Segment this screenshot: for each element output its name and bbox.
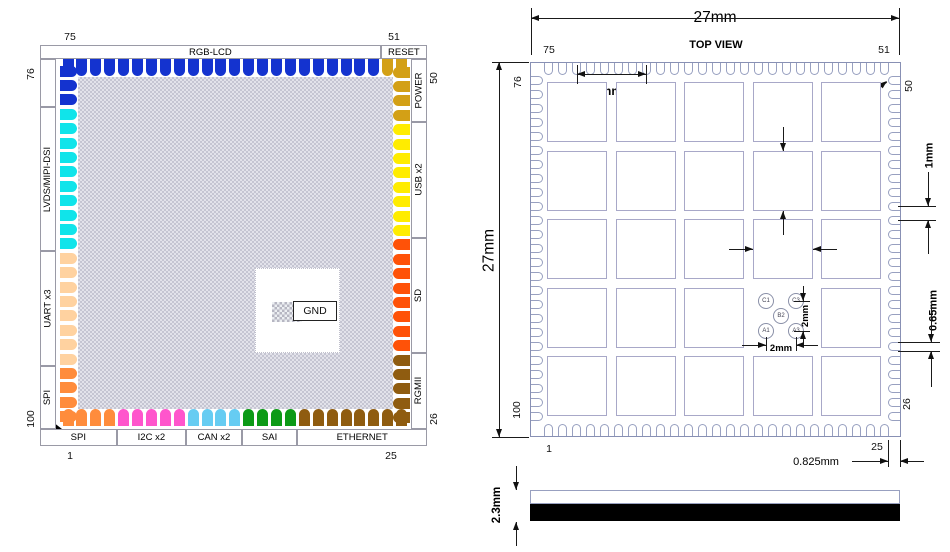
mech-pin-100: 100	[511, 396, 523, 424]
castellation-arc-right	[888, 160, 900, 169]
dim-line	[577, 74, 646, 75]
dim-line	[766, 337, 767, 351]
castellation-arc-right	[888, 356, 900, 365]
dim-line	[531, 18, 899, 19]
thermal-pad	[684, 356, 744, 416]
castellation-arc-left	[531, 370, 543, 379]
castellation-arc-top	[782, 63, 791, 75]
dim-arrow	[758, 342, 766, 348]
dim-arrow	[928, 334, 934, 342]
castellation-arc-top	[544, 63, 553, 75]
castellation-arc-left	[531, 244, 543, 253]
castellation-arc-top	[866, 63, 875, 75]
castellation-arc-right	[888, 132, 900, 141]
dim-arrow	[496, 429, 502, 437]
thermal-pad	[547, 219, 607, 279]
fiducial: C1	[758, 293, 774, 309]
castellation-arc-right	[888, 328, 900, 337]
mech-pin-51: 51	[872, 44, 896, 56]
dim-line	[794, 301, 810, 302]
dim-line	[492, 437, 529, 438]
castellation-arc-left	[531, 314, 543, 323]
castellation-arc-bottom	[838, 424, 847, 436]
castellation-arc-bottom	[586, 424, 595, 436]
thermal-pad	[616, 151, 676, 211]
thermal-pad	[616, 219, 676, 279]
thermal-pad	[684, 82, 744, 142]
castellation-arc-bottom	[796, 424, 805, 436]
castellation-arc-left	[531, 76, 543, 85]
thermal-pad	[547, 82, 607, 142]
dim-arrow	[513, 522, 519, 530]
thermal-pad	[616, 356, 676, 416]
castellation-arc-bottom	[712, 424, 721, 436]
mech-pin-50: 50	[903, 74, 915, 98]
castellation-arc-left	[531, 328, 543, 337]
mech-pin-26: 26	[901, 392, 913, 416]
castellation-arc-left	[531, 286, 543, 295]
castellation-arc-bottom	[684, 424, 693, 436]
dim-arrow	[880, 458, 888, 464]
top-view-title: TOP VIEW	[676, 38, 756, 51]
dim-arrow	[796, 342, 804, 348]
dim-arrow	[780, 143, 786, 151]
castellation-arc-right	[888, 398, 900, 407]
dim-arrow	[800, 293, 806, 301]
dim-arrow	[531, 15, 539, 21]
dim-line	[898, 206, 936, 207]
castellation-arc-top	[712, 63, 721, 75]
mech-pin-75: 75	[537, 44, 561, 56]
dim-arrow	[496, 62, 502, 70]
dim-arrow	[800, 331, 806, 339]
castellation-arc-bottom	[852, 424, 861, 436]
castellation-arc-top	[880, 63, 889, 75]
castellation-arc-right	[888, 286, 900, 295]
castellation-arc-bottom	[768, 424, 777, 436]
castellation-arc-right	[888, 188, 900, 197]
dim-arrow	[638, 71, 646, 77]
fiducial: B2	[773, 308, 789, 324]
castellation-arc-right	[888, 146, 900, 155]
castellation-arc-right	[888, 272, 900, 281]
castellation-arc-right	[888, 118, 900, 127]
dim-arrow	[891, 15, 899, 21]
castellation-arc-left	[531, 90, 543, 99]
dim-arrow	[813, 246, 821, 252]
castellation-arc-bottom	[600, 424, 609, 436]
castellation-arc-left	[531, 272, 543, 281]
castellation-arc-right	[888, 314, 900, 323]
dim-arrow	[745, 246, 753, 252]
thermal-pad	[547, 356, 607, 416]
dim-arrow	[900, 458, 908, 464]
castellation-arc-bottom	[572, 424, 581, 436]
dim-line	[499, 62, 500, 437]
castellation-arc-left	[531, 356, 543, 365]
castellation-arc-bottom	[670, 424, 679, 436]
castellation-arc-left	[531, 384, 543, 393]
dim-overall-height: 27mm	[482, 221, 497, 281]
castellation-arc-left	[531, 160, 543, 169]
castellation-arc-bottom	[880, 424, 889, 436]
module-datasheet-canvas: 75 51 76 100 50 26 1 25 GND RGB-LCDRESET…	[0, 0, 950, 552]
castellation-arc-right	[888, 384, 900, 393]
dim-edge-offset: 0.825mm	[786, 455, 846, 468]
castellation-arc-top	[852, 63, 861, 75]
mech-pin-25: 25	[865, 441, 889, 453]
castellation-arc-bottom	[866, 424, 875, 436]
castellation-arc-bottom	[628, 424, 637, 436]
dim-line	[898, 342, 940, 343]
castellation-arc-right	[888, 76, 900, 85]
castellation-arc-left	[531, 202, 543, 211]
dim-line	[899, 8, 900, 55]
castellation-arc-top	[838, 63, 847, 75]
dim-arrow	[513, 482, 519, 490]
castellation-arc-top	[558, 63, 567, 75]
thermal-pad	[821, 288, 881, 348]
dim-fiducial-dx: 2mm	[766, 342, 796, 354]
castellation-arc-bottom	[656, 424, 665, 436]
mechanical-drawing: TOP VIEW 75 51 76 100 50 26 1 25 27mm 27…	[0, 0, 950, 552]
castellation-arc-left	[531, 230, 543, 239]
castellation-arc-left	[531, 342, 543, 351]
thermal-pad	[684, 151, 744, 211]
castellation-arc-left	[531, 412, 543, 421]
sideview-pcb	[530, 490, 900, 504]
castellation-arc-left	[531, 146, 543, 155]
castellation-arc-bottom	[810, 424, 819, 436]
castellation-arc-left	[531, 216, 543, 225]
castellation-arc-left	[531, 188, 543, 197]
castellation-arc-top	[656, 63, 665, 75]
thermal-pad	[753, 151, 813, 211]
castellation-arc-right	[888, 412, 900, 421]
castellation-arc-left	[531, 104, 543, 113]
castellation-arc-top	[796, 63, 805, 75]
castellation-arc-top	[810, 63, 819, 75]
castellation-arc-bottom	[614, 424, 623, 436]
castellation-arc-bottom	[642, 424, 651, 436]
castellation-arc-right	[888, 230, 900, 239]
mech-pin-76: 76	[512, 70, 524, 94]
fiducial-label: B2	[777, 313, 784, 319]
thermal-pad	[616, 288, 676, 348]
thermal-pad	[821, 82, 881, 142]
castellation-arc-right	[888, 244, 900, 253]
dim-line	[888, 440, 889, 467]
thermal-pad	[547, 288, 607, 348]
fiducial-label: A1	[762, 328, 769, 334]
castellation-arc-bottom	[824, 424, 833, 436]
dim-thickness: 2.3mm	[490, 482, 504, 528]
thermal-pad	[684, 288, 744, 348]
thermal-pad	[821, 356, 881, 416]
castellation-arc-bottom	[740, 424, 749, 436]
castellation-arc-bottom	[782, 424, 791, 436]
castellation-arc-top	[726, 63, 735, 75]
castellation-arc-bottom	[726, 424, 735, 436]
castellation-arc-left	[531, 118, 543, 127]
castellation-arc-right	[888, 370, 900, 379]
dim-pin-width: 0.65mm	[927, 284, 940, 338]
castellation-arc-left	[531, 398, 543, 407]
dim-arrow	[925, 198, 931, 206]
castellation-arc-bottom	[754, 424, 763, 436]
thermal-pad	[821, 151, 881, 211]
castellation-arc-top	[670, 63, 679, 75]
castellation-arc-left	[531, 258, 543, 267]
fiducial-label: C1	[762, 298, 770, 304]
thermal-pad	[753, 356, 813, 416]
castellation-arc-bottom	[558, 424, 567, 436]
castellation-arc-right	[888, 90, 900, 99]
castellation-arc-left	[531, 132, 543, 141]
dim-line	[646, 65, 647, 84]
castellation-arc-bottom	[698, 424, 707, 436]
thermal-pad	[547, 151, 607, 211]
castellation-arc-right	[888, 300, 900, 309]
castellation-arc-top	[684, 63, 693, 75]
sideview-body	[530, 504, 900, 521]
dim-pin-pitch: 1mm	[923, 134, 936, 178]
castellation-arc-right	[888, 104, 900, 113]
castellation-arc-right	[888, 174, 900, 183]
castellation-arc-bottom	[544, 424, 553, 436]
castellation-arc-top	[768, 63, 777, 75]
castellation-arc-top	[754, 63, 763, 75]
castellation-arc-top	[740, 63, 749, 75]
castellation-arc-left	[531, 300, 543, 309]
castellation-arc-top	[824, 63, 833, 75]
mech-pin-1: 1	[537, 443, 561, 455]
castellation-arc-right	[888, 258, 900, 267]
castellation-arc-left	[531, 174, 543, 183]
thermal-pad	[616, 82, 676, 142]
dim-arrow	[928, 351, 934, 359]
dim-arrow	[577, 71, 585, 77]
dim-line	[898, 351, 940, 352]
dim-arrow	[780, 211, 786, 219]
castellation-arc-top	[698, 63, 707, 75]
dim-arrow	[925, 220, 931, 228]
